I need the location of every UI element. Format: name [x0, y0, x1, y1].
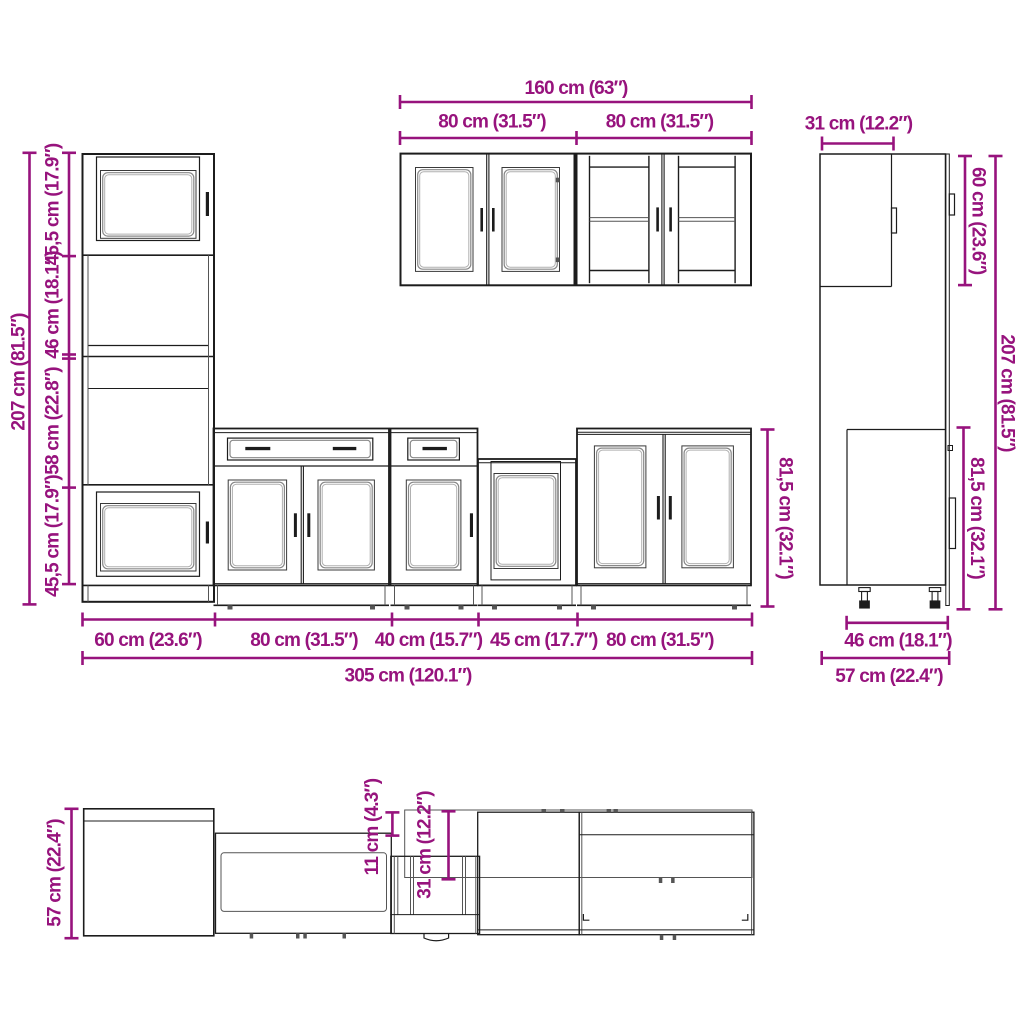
svg-text:207 cm (81.5″): 207 cm (81.5″) — [8, 313, 29, 431]
svg-text:160 cm (63″): 160 cm (63″) — [524, 78, 627, 99]
svg-text:58 cm (22.8″): 58 cm (22.8″) — [42, 367, 63, 475]
svg-text:80 cm (31.5″): 80 cm (31.5″) — [250, 630, 358, 651]
svg-text:305 cm (120.1″): 305 cm (120.1″) — [344, 666, 471, 687]
svg-text:45 cm (17.7″): 45 cm (17.7″) — [490, 630, 598, 651]
svg-text:80 cm (31.5″): 80 cm (31.5″) — [606, 111, 714, 132]
svg-text:45,5 cm (17.9″): 45,5 cm (17.9″) — [42, 475, 63, 597]
svg-text:60 cm (23.6″): 60 cm (23.6″) — [968, 167, 989, 275]
svg-text:45,5 cm (17.9″): 45,5 cm (17.9″) — [42, 143, 63, 265]
svg-text:80 cm (31.5″): 80 cm (31.5″) — [438, 111, 546, 132]
svg-text:40 cm (15.7″): 40 cm (15.7″) — [375, 630, 483, 651]
svg-text:31 cm (12.2″): 31 cm (12.2″) — [414, 791, 435, 899]
svg-text:57 cm (22.4″): 57 cm (22.4″) — [44, 819, 65, 927]
svg-text:80 cm (31.5″): 80 cm (31.5″) — [606, 630, 714, 651]
svg-text:46 cm (18.1″): 46 cm (18.1″) — [844, 631, 952, 652]
svg-text:46 cm (18.1″): 46 cm (18.1″) — [42, 251, 63, 359]
svg-text:57 cm (22.4″): 57 cm (22.4″) — [835, 666, 943, 687]
svg-text:207 cm (81.5″): 207 cm (81.5″) — [997, 334, 1018, 452]
svg-text:11 cm (4.3″): 11 cm (4.3″) — [362, 778, 383, 875]
svg-text:31 cm (12.2″): 31 cm (12.2″) — [805, 113, 913, 134]
svg-text:60 cm (23.6″): 60 cm (23.6″) — [94, 630, 202, 651]
svg-text:81,5 cm (32.1″): 81,5 cm (32.1″) — [966, 457, 987, 579]
svg-text:81,5 cm (32.1″): 81,5 cm (32.1″) — [775, 457, 796, 579]
